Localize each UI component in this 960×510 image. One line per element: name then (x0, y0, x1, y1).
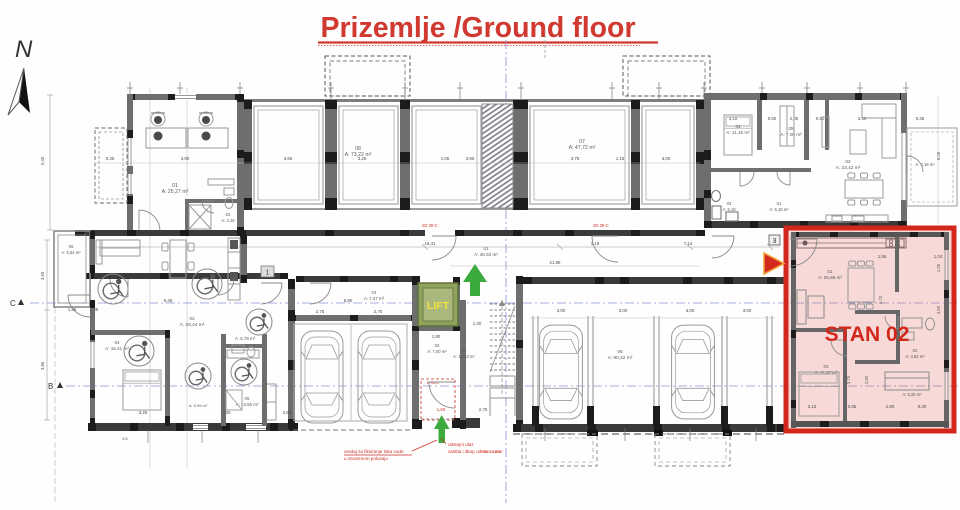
svg-text:E0 30-C: E0 30-C (422, 223, 437, 228)
svg-text:u otvorenom polozaju: u otvorenom polozaju (344, 456, 388, 461)
svg-text:uredaj za fiksiranje toka vode: uredaj za fiksiranje toka vode (344, 449, 404, 454)
svg-text:04: 04 (372, 290, 377, 295)
svg-text:A: 15,23 m²: A: 15,23 m² (453, 354, 475, 359)
svg-text:02: 02 (462, 348, 467, 353)
svg-text:0,35: 0,35 (916, 116, 925, 121)
svg-text:A: 5,54 m²: A: 5,54 m² (61, 250, 81, 255)
svg-text:3,00: 3,00 (662, 156, 671, 161)
svg-text:Prizemlje /Ground floor: Prizemlje /Ground floor (320, 12, 635, 44)
svg-text:06: 06 (69, 244, 74, 249)
svg-text:1,18: 1,18 (591, 241, 600, 246)
svg-text:1,55: 1,55 (936, 263, 941, 272)
svg-text:6,00: 6,00 (936, 151, 941, 160)
svg-text:3,00: 3,00 (686, 308, 695, 313)
svg-text:A: 25,69 m²: A: 25,69 m² (818, 275, 842, 280)
svg-text:2,75: 2,75 (316, 309, 325, 314)
svg-text:A: 16,41 m²: A: 16,41 m² (105, 346, 129, 351)
svg-text:3: 3 (773, 238, 777, 245)
svg-text:zastita i dkop od min. vune: zastita i dkop od min. vune (448, 449, 503, 454)
svg-text:01: 01 (777, 201, 782, 206)
svg-text:3,75: 3,75 (846, 375, 851, 384)
svg-text:3,65: 3,65 (284, 156, 293, 161)
svg-text:A: 5,19: A: 5,19 (722, 207, 736, 212)
svg-text:A: 47,72 m²: A: 47,72 m² (569, 145, 596, 151)
svg-text:7,14: 7,14 (684, 241, 693, 246)
svg-text:3,50: 3,50 (936, 305, 941, 314)
svg-text:E0 30-C: E0 30-C (593, 223, 608, 228)
svg-text:A: 4,18 m²: A: 4,18 m² (915, 162, 935, 167)
svg-text:05: 05 (788, 126, 794, 131)
svg-text:1,55: 1,55 (68, 307, 77, 312)
svg-text:LIFT: LIFT (427, 300, 450, 312)
svg-text:A: 6,78 m²: A: 6,78 m² (235, 336, 256, 341)
svg-text:03: 03 (727, 201, 732, 206)
svg-text:16,41: 16,41 (425, 241, 437, 246)
svg-text:2,80: 2,80 (283, 410, 292, 415)
svg-text:0,80: 0,80 (768, 116, 777, 121)
svg-text:1,55: 1,55 (878, 254, 887, 259)
svg-text:A: 25,27 m²: A: 25,27 m² (162, 189, 189, 195)
svg-text:0,35: 0,35 (106, 156, 115, 161)
svg-text:6,45: 6,45 (164, 298, 173, 303)
svg-text:3,00: 3,00 (557, 308, 566, 313)
svg-text:02: 02 (189, 316, 195, 322)
svg-text:1,04: 1,04 (934, 254, 943, 259)
svg-text:4,90: 4,90 (181, 156, 190, 161)
svg-text:A: 7,00 m²: A: 7,00 m² (780, 132, 802, 137)
svg-text:A: 6,99 m²: A: 6,99 m² (189, 403, 208, 408)
svg-text:04: 04 (735, 124, 741, 129)
svg-text:01: 01 (827, 269, 833, 274)
svg-text:02: 02 (226, 212, 231, 217)
svg-text:A: 11,16 m²: A: 11,16 m² (726, 130, 750, 135)
svg-text:03: 03 (435, 343, 440, 348)
svg-text:2,80: 2,80 (886, 404, 895, 409)
svg-text:A: 46,53 m²: A: 46,53 m² (474, 252, 498, 257)
svg-text:6,5: 6,5 (122, 437, 127, 441)
svg-text:3,25: 3,25 (139, 410, 148, 415)
svg-text:A: 80,42 m²: A: 80,42 m² (608, 355, 633, 361)
svg-text:04: 04 (114, 340, 120, 345)
svg-text:05: 05 (245, 396, 250, 401)
svg-text:A: 23,42 m²: A: 23,42 m² (836, 165, 861, 171)
svg-text:A: 4,82 m²: A: 4,82 m² (905, 354, 925, 359)
svg-text:0,85: 0,85 (848, 404, 857, 409)
svg-text:3,10: 3,10 (808, 404, 817, 409)
svg-text:B: B (48, 382, 53, 391)
svg-text:02: 02 (913, 348, 918, 353)
svg-text:A: 8,25 m²: A: 8,25 m² (902, 392, 922, 397)
svg-text:C: C (10, 299, 16, 308)
svg-text:2,80: 2,80 (864, 375, 869, 384)
svg-text:2,75: 2,75 (479, 407, 488, 412)
svg-text:A: 29,44 m²: A: 29,44 m² (180, 322, 205, 328)
svg-text:1,80: 1,80 (432, 334, 441, 339)
svg-text:3,60: 3,60 (40, 271, 45, 280)
svg-text:A: 7,37 m²: A: 7,37 m² (364, 296, 385, 301)
svg-text:5,80: 5,80 (344, 298, 353, 303)
svg-text:3,00: 3,00 (619, 308, 628, 313)
svg-text:1,15: 1,15 (616, 156, 625, 161)
svg-text:3,75: 3,75 (571, 156, 580, 161)
svg-text:STAN 02: STAN 02 (825, 323, 910, 346)
svg-text:3,85: 3,85 (40, 361, 45, 370)
svg-text:A: 4,16: A: 4,16 (221, 218, 235, 223)
svg-text:3,95: 3,95 (466, 156, 475, 161)
svg-text:02: 02 (845, 159, 851, 165)
svg-text:1,05: 1,05 (441, 156, 450, 161)
svg-text:N: N (15, 36, 33, 63)
svg-text:21,86: 21,86 (550, 260, 562, 265)
svg-text:9,30: 9,30 (918, 404, 927, 409)
svg-text:30: 30 (226, 410, 231, 415)
svg-text:A: 7,00 m²: A: 7,00 m² (427, 349, 447, 354)
svg-text:1: 1 (266, 270, 270, 277)
svg-text:06: 06 (617, 349, 623, 355)
svg-text:1,30: 1,30 (473, 321, 482, 326)
svg-text:5,40: 5,40 (40, 156, 45, 165)
svg-text:3,25: 3,25 (358, 156, 367, 161)
svg-text:A: 5,18 m²: A: 5,18 m² (769, 207, 789, 212)
svg-text:3,00: 3,00 (743, 308, 752, 313)
svg-text:03: 03 (824, 364, 829, 369)
svg-text:2,75: 2,75 (374, 309, 383, 314)
svg-text:odstojni ulaz: odstojni ulaz (448, 442, 474, 447)
svg-text:4,70: 4,70 (878, 295, 883, 304)
svg-text:1,60: 1,60 (437, 407, 446, 412)
